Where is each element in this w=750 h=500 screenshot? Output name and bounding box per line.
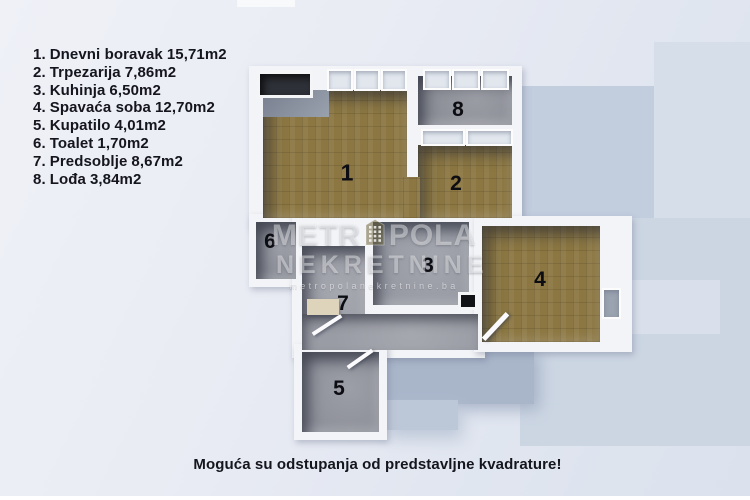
- legend-room-area: 15,71m2: [167, 46, 227, 63]
- legend-room-area: 4,01m2: [115, 117, 166, 134]
- legend-item: 4.Spavaća soba12,70m2: [33, 99, 227, 117]
- shaft-box: [458, 292, 478, 310]
- window: [602, 288, 621, 319]
- legend-room-area: 8,67m2: [131, 153, 182, 170]
- building-cast-shadow: [384, 400, 458, 430]
- legend-item: 1.Dnevni boravak15,71m2: [33, 46, 227, 64]
- room-number: 6: [264, 230, 276, 254]
- kitchen-counter: [307, 299, 339, 315]
- legend-item: 3.Kuhinja6,50m2: [33, 82, 227, 100]
- background-shade: [630, 280, 720, 334]
- legend-num: 7.: [33, 153, 46, 170]
- legend-room-name: Spavaća soba: [50, 99, 151, 116]
- legend-num: 1.: [33, 46, 46, 63]
- legend-num: 6.: [33, 135, 46, 152]
- window: [354, 69, 380, 91]
- legend-room-area: 1,70m2: [97, 135, 148, 152]
- legend-room-name: Kupatilo: [50, 117, 111, 134]
- window: [423, 69, 451, 90]
- legend-room-name: Dnevni boravak: [50, 46, 163, 63]
- legend-item: 5.Kupatilo4,01m2: [33, 117, 227, 135]
- legend-room-name: Toalet: [50, 135, 94, 152]
- window: [481, 69, 509, 90]
- room-number: 4: [534, 268, 546, 292]
- room-dining-floor: [418, 145, 512, 218]
- legend-room-area: 7,86m2: [125, 64, 176, 81]
- legend-item: 8.Lođa3,84m2: [33, 171, 227, 189]
- background-patch: [237, 0, 295, 7]
- legend-item: 7.Predsoblje8,67m2: [33, 153, 227, 171]
- legend-room-name: Kuhinja: [50, 82, 106, 99]
- legend-room-area: 6,50m2: [109, 82, 160, 99]
- window: [466, 129, 513, 146]
- room-number: 3: [422, 254, 434, 278]
- legend-room-name: Predsoblje: [50, 153, 128, 170]
- room-toilet-floor: [256, 222, 296, 279]
- room-number: 1: [341, 160, 354, 187]
- entry-alcove: [257, 71, 313, 98]
- window: [381, 69, 407, 91]
- room-number: 2: [450, 172, 462, 196]
- room-corridor-floor: [302, 314, 478, 350]
- window: [452, 69, 480, 90]
- legend-num: 2.: [33, 64, 46, 81]
- legend-room-area: 12,70m2: [155, 99, 215, 116]
- room-number: 7: [337, 292, 349, 316]
- legend-num: 5.: [33, 117, 46, 134]
- window: [421, 129, 465, 146]
- legend-item: 6.Toalet1,70m2: [33, 135, 227, 153]
- room-kitchen-floor: [373, 222, 469, 305]
- room-legend: 1.Dnevni boravak15,71m2 2.Trpezarija7,86…: [33, 46, 227, 188]
- background-shade: [520, 86, 654, 220]
- legend-num: 8.: [33, 171, 46, 188]
- disclaimer-text: Moguća su odstupanja od predstavljne kva…: [0, 456, 750, 473]
- legend-room-name: Lođa: [50, 171, 86, 188]
- legend-room-name: Trpezarija: [50, 64, 121, 81]
- room-opening-floor: [403, 177, 420, 218]
- legend-num: 4.: [33, 99, 46, 116]
- room-number: 8: [452, 98, 464, 122]
- background-shade: [654, 42, 750, 218]
- legend-room-area: 3,84m2: [90, 171, 141, 188]
- window: [327, 69, 353, 91]
- legend-num: 3.: [33, 82, 46, 99]
- room-number: 5: [333, 377, 345, 401]
- legend-item: 2.Trpezarija7,86m2: [33, 64, 227, 82]
- background-bottom-strip: [0, 496, 750, 500]
